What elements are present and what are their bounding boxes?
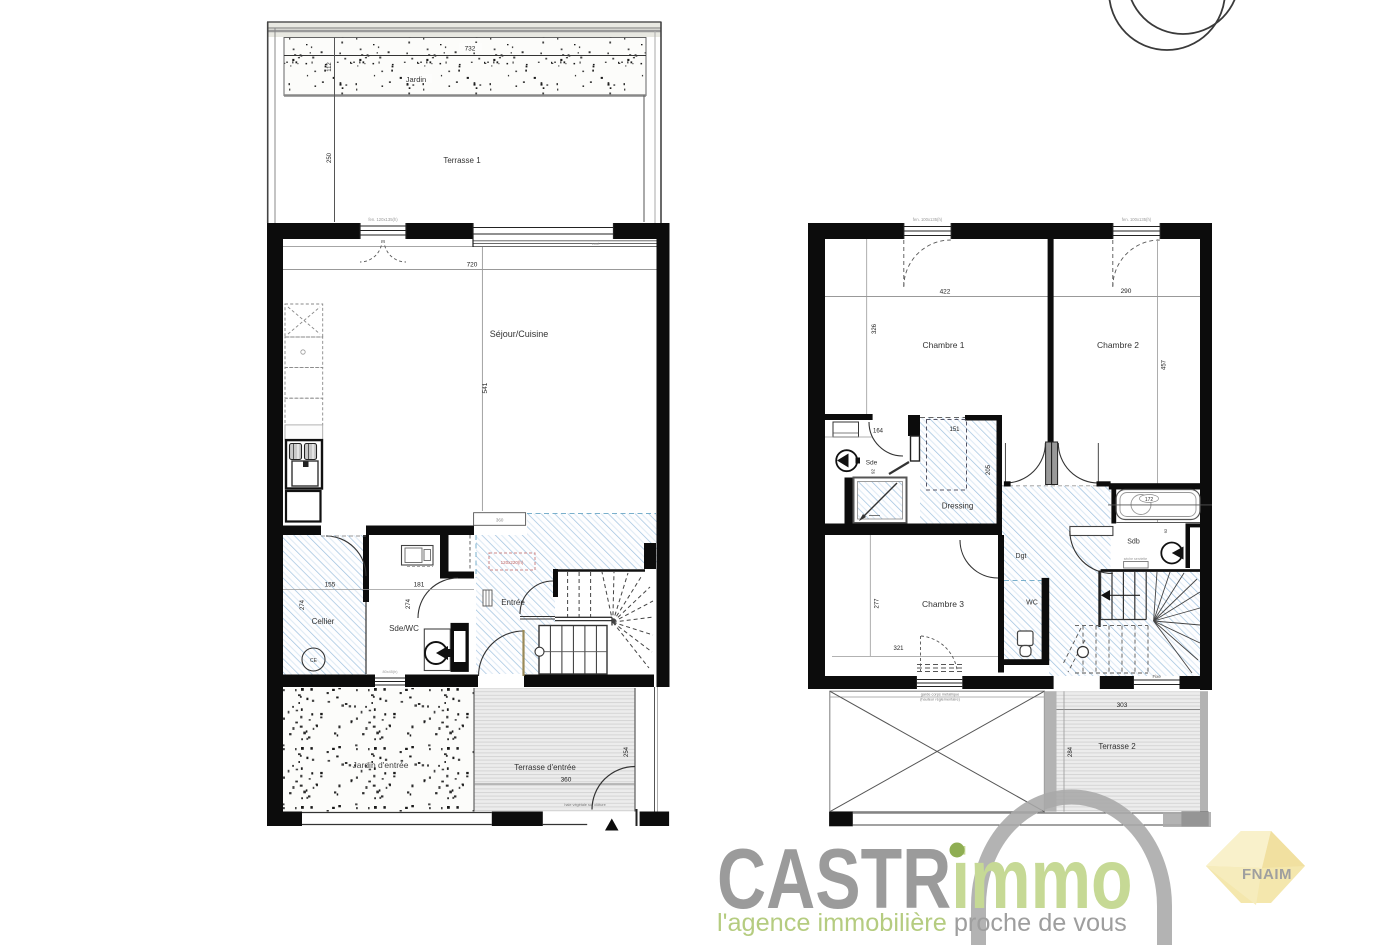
svg-text:Sde: Sde <box>866 460 878 467</box>
svg-text:Terrasse 2: Terrasse 2 <box>1098 742 1136 751</box>
svg-text:151: 151 <box>949 427 960 433</box>
svg-text:164: 164 <box>873 429 884 435</box>
svg-text:Cellier: Cellier <box>312 617 335 626</box>
svg-text:274: 274 <box>406 598 412 609</box>
svg-text:fen. 120x135(h): fen. 120x135(h) <box>368 217 398 222</box>
svg-text:l'agence immobilière proche de: l'agence immobilière proche de vous <box>717 909 1127 937</box>
svg-text:coul.: coul. <box>592 241 600 246</box>
svg-text:120x220(h): 120x220(h) <box>501 560 524 565</box>
svg-text:Terrasse 1: Terrasse 1 <box>443 156 481 165</box>
svg-text:112: 112 <box>327 62 333 72</box>
svg-text:FNAIM: FNAIM <box>1242 866 1292 883</box>
svg-text:321: 321 <box>893 646 904 652</box>
svg-text:Chambre 1: Chambre 1 <box>922 340 964 350</box>
svg-text:Chambre 3: Chambre 3 <box>922 599 964 609</box>
svg-text:732: 732 <box>465 46 476 53</box>
svg-text:fen. 100x135(h): fen. 100x135(h) <box>1122 217 1152 222</box>
svg-text:303: 303 <box>1117 702 1128 709</box>
svg-text:Fixe: Fixe <box>1152 674 1161 679</box>
svg-text:fen. 100x135(h): fen. 100x135(h) <box>913 217 943 222</box>
svg-text:172: 172 <box>1145 497 1154 503</box>
svg-text:80x45(h): 80x45(h) <box>383 670 399 674</box>
svg-text:Séjour/Cuisine: Séjour/Cuisine <box>490 329 549 339</box>
svg-text:garde corps métallique: garde corps métallique <box>921 693 959 697</box>
svg-text:326: 326 <box>872 323 878 334</box>
svg-text:Terrasse d'entrée: Terrasse d'entrée <box>514 763 576 772</box>
svg-text:457: 457 <box>1162 359 1168 370</box>
svg-text:sèche serviette: sèche serviette <box>1124 557 1148 561</box>
svg-text:Dgt: Dgt <box>1016 553 1027 560</box>
svg-text:Jardin d'entrée: Jardin d'entrée <box>353 760 409 770</box>
svg-text:155: 155 <box>325 582 336 589</box>
svg-text:Jardin: Jardin <box>406 75 426 84</box>
svg-text:284: 284 <box>1068 746 1074 757</box>
svg-text:Dressing: Dressing <box>942 502 974 511</box>
svg-text:720: 720 <box>467 262 478 269</box>
svg-text:274: 274 <box>300 599 306 610</box>
svg-text:(hauteur réglementaire): (hauteur réglementaire) <box>920 698 960 702</box>
svg-text:205: 205 <box>986 464 992 475</box>
svg-text:92: 92 <box>1163 528 1168 533</box>
svg-text:Sdb: Sdb <box>1127 539 1140 546</box>
svg-text:290: 290 <box>1121 288 1132 295</box>
svg-text:Chambre 2: Chambre 2 <box>1097 340 1139 350</box>
svg-text:haie végétale sur clôture: haie végétale sur clôture <box>564 803 605 807</box>
svg-text:541: 541 <box>482 382 489 393</box>
svg-text:422: 422 <box>940 289 951 296</box>
svg-text:Sde/WC: Sde/WC <box>389 624 419 633</box>
svg-text:181: 181 <box>414 582 425 589</box>
svg-text:CE: CE <box>310 658 318 664</box>
svg-text:250: 250 <box>327 152 333 163</box>
svg-text:360: 360 <box>561 777 572 784</box>
svg-text:360: 360 <box>496 518 504 523</box>
svg-text:277: 277 <box>875 598 881 609</box>
svg-text:92: 92 <box>871 469 876 475</box>
svg-text:WC: WC <box>1026 600 1038 607</box>
svg-text:254: 254 <box>624 746 630 757</box>
